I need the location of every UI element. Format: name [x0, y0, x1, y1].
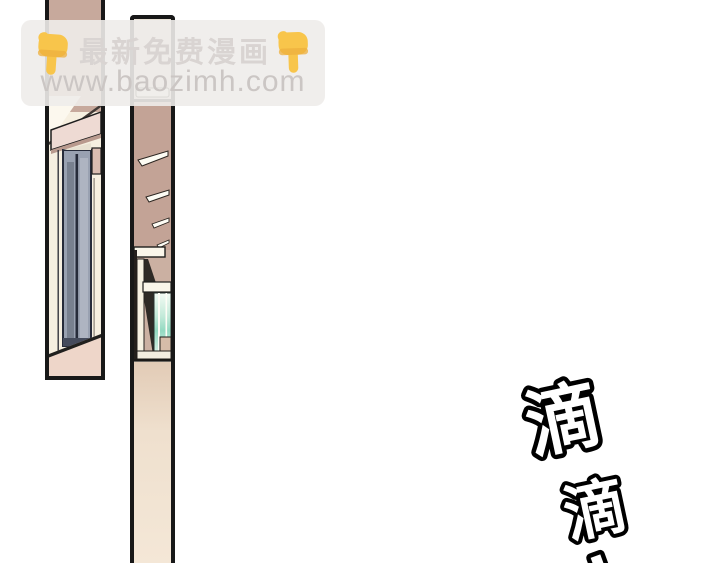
sfx-char-2: 滴 — [557, 468, 633, 552]
watermark-url: www.baozimh.com — [21, 65, 325, 99]
sfx-text: 滴 滴 ! — [505, 360, 710, 563]
comic-page: 最新免费漫画 www.baozimh.com 滴 滴 ! — [0, 0, 720, 563]
watermark-banner: 最新免费漫画 www.baozimh.com — [21, 20, 325, 106]
sfx-char-1: 滴 — [518, 371, 608, 471]
